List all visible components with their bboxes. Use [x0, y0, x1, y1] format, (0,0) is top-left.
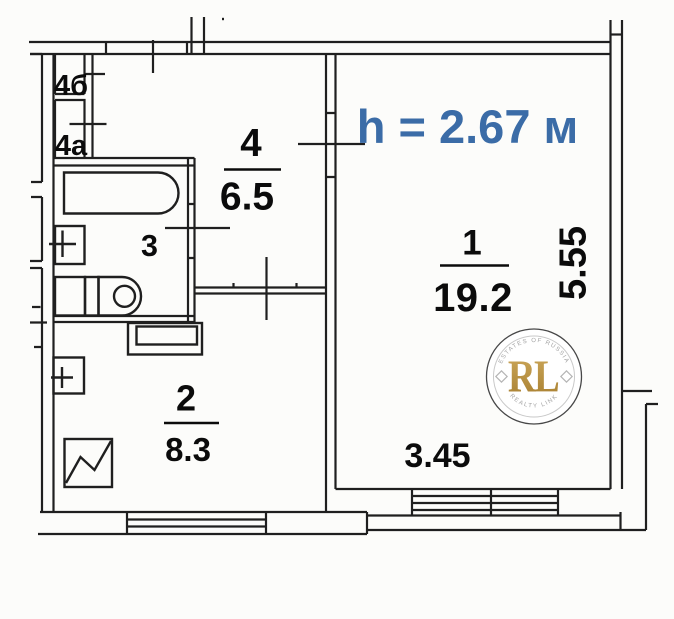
svg-text:19.2: 19.2 — [433, 276, 513, 320]
svg-text:5.55: 5.55 — [553, 226, 595, 300]
svg-text:2: 2 — [176, 378, 196, 419]
svg-text:4а: 4а — [55, 130, 88, 162]
svg-text:RL: RL — [508, 351, 559, 402]
svg-text:3.45: 3.45 — [404, 437, 470, 475]
svg-text:3: 3 — [141, 229, 158, 263]
svg-text:8.3: 8.3 — [165, 431, 211, 468]
svg-text:h = 2.67 м: h = 2.67 м — [357, 100, 579, 153]
svg-text:4: 4 — [240, 122, 262, 165]
svg-text:4б: 4б — [54, 70, 88, 102]
svg-text:1: 1 — [462, 224, 481, 263]
svg-text:6.5: 6.5 — [220, 176, 274, 219]
